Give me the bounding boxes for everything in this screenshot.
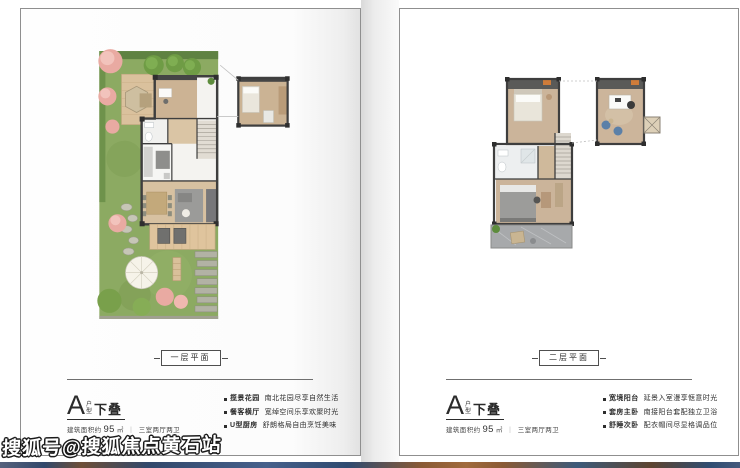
feature-item: 揽景花园 南北花园尽享自然生活 <box>224 395 339 403</box>
unit-letter: A <box>67 394 85 416</box>
detached-room-level1 <box>217 65 289 127</box>
bullet-square-icon <box>603 425 606 428</box>
bullet-square-icon <box>603 411 606 414</box>
first-floor-plan-drawing <box>79 38 311 330</box>
bullet-square-icon <box>224 425 227 428</box>
second-floor-plan-drawing <box>471 55 671 265</box>
unit-name: A 户 型 下叠 <box>67 394 180 416</box>
bullet-square-icon <box>603 398 606 401</box>
unit-type-vertical: 户 型 <box>86 402 92 415</box>
unit-name: A 户 型 下叠 <box>446 394 559 416</box>
detached-study-level2 <box>595 77 660 146</box>
staircase <box>555 133 571 179</box>
stepping-stones-right <box>195 251 217 311</box>
unit-type-vertical: 户 型 <box>465 402 471 415</box>
hallway <box>538 146 555 179</box>
unit-title: A 户 型 下叠 建筑面积约95㎡｜三室两厅两卫 <box>446 394 559 435</box>
floor-level-badge: 一层平面 <box>161 350 221 366</box>
deck-pergola <box>121 74 154 124</box>
bottom-image-strip <box>0 462 740 468</box>
brochure-page-left: 一层平面 A 户 型 下叠 建筑面积约95㎡｜三室两厅两卫 揽景花园 南北花园尽… <box>20 8 361 456</box>
unit-title: A 户 型 下叠 建筑面积约95㎡｜三室两厅两卫 <box>67 394 180 435</box>
feature-list: 宽境阳台 延景入室漫享惬意时光 套房主卧 南接阳台套配独立卫浴 舒睡次卧 配衣帽… <box>603 395 718 430</box>
bullet-square-icon <box>224 411 227 414</box>
feature-item: U型厨房 舒朗格局自由烹饪美味 <box>224 422 339 430</box>
watermark-text: 搜狐号@搜狐焦点黄石站 <box>2 435 222 461</box>
unit-area-line: 建筑面积约95㎡｜三室两厅两卫 <box>446 424 559 435</box>
garden-umbrella <box>126 256 158 288</box>
bathroom-level2 <box>494 146 538 179</box>
divider-rule <box>67 379 313 380</box>
divider-rule <box>446 379 692 380</box>
floor-level-badge: 二层平面 <box>539 350 599 366</box>
feature-item: 宽境阳台 延景入室漫享惬意时光 <box>603 395 718 403</box>
feature-item: 餐客横厅 宽绰空间乐享欢聚时光 <box>224 409 339 417</box>
brochure-page-right: 二层平面 A 户 型 下叠 建筑面积约95㎡｜三室两厅两卫 宽境阳台 延景入室漫… <box>399 8 739 456</box>
page-gutter <box>361 0 399 462</box>
feature-item: 舒睡次卧 配衣帽间尽显格调品位 <box>603 422 718 430</box>
master-bedroom <box>496 179 572 224</box>
balcony <box>491 225 572 248</box>
feature-item: 套房主卧 南接阳台套配独立卫浴 <box>603 409 718 417</box>
terrace-deck <box>150 224 215 249</box>
unit-letter: A <box>446 394 464 416</box>
callout-lines <box>217 65 238 116</box>
garden-bench <box>173 258 181 281</box>
feature-list: 揽景花园 南北花园尽享自然生活 餐客横厅 宽绰空间乐享欢聚时光 U型厨房 舒朗格… <box>224 395 339 430</box>
unit-suffix: 下叠 <box>473 403 501 416</box>
bullet-square-icon <box>224 398 227 401</box>
unit-suffix: 下叠 <box>94 403 122 416</box>
bedroom-north <box>507 79 559 144</box>
unit-area-line: 建筑面积约95㎡｜三室两厅两卫 <box>67 424 180 435</box>
